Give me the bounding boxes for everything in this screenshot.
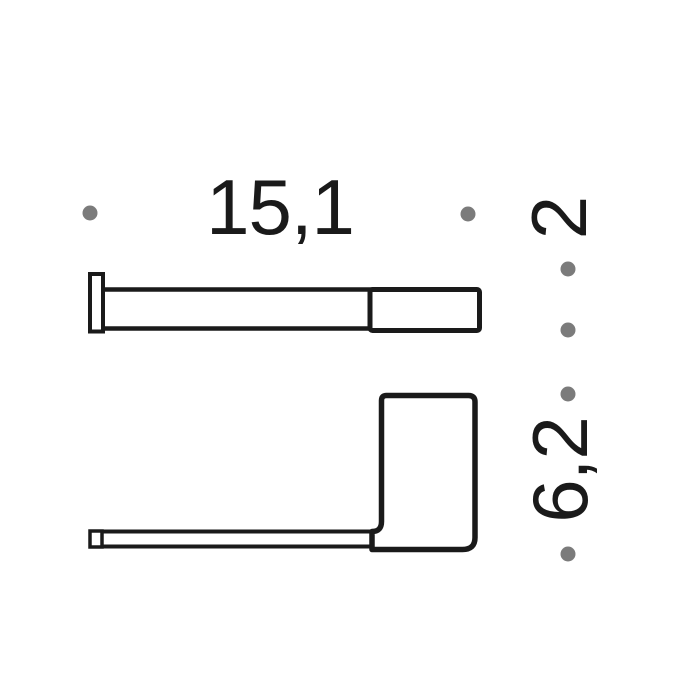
top-view-bar-outline: [101, 290, 372, 329]
side-view: [90, 396, 475, 550]
top-view-wall-mount-tab: [90, 274, 103, 332]
top-view: [90, 274, 480, 332]
dimension-dot-depth-bottom: [561, 323, 576, 338]
technical-drawing: 15,1 2 6,2: [0, 0, 700, 700]
dimension-dot-depth-top: [561, 262, 576, 277]
dimension-dot-width-right: [461, 207, 476, 222]
side-view-wall-plate: [372, 396, 475, 550]
top-view-end-cap: [370, 290, 480, 331]
dimension-dot-height-top: [561, 387, 576, 402]
dimension-dot-width-left: [83, 206, 98, 221]
dimension-dots: [83, 206, 576, 562]
drawing-canvas: [0, 0, 700, 700]
dimension-dot-height-bottom: [561, 547, 576, 562]
side-view-bar-end-cap: [90, 531, 102, 547]
